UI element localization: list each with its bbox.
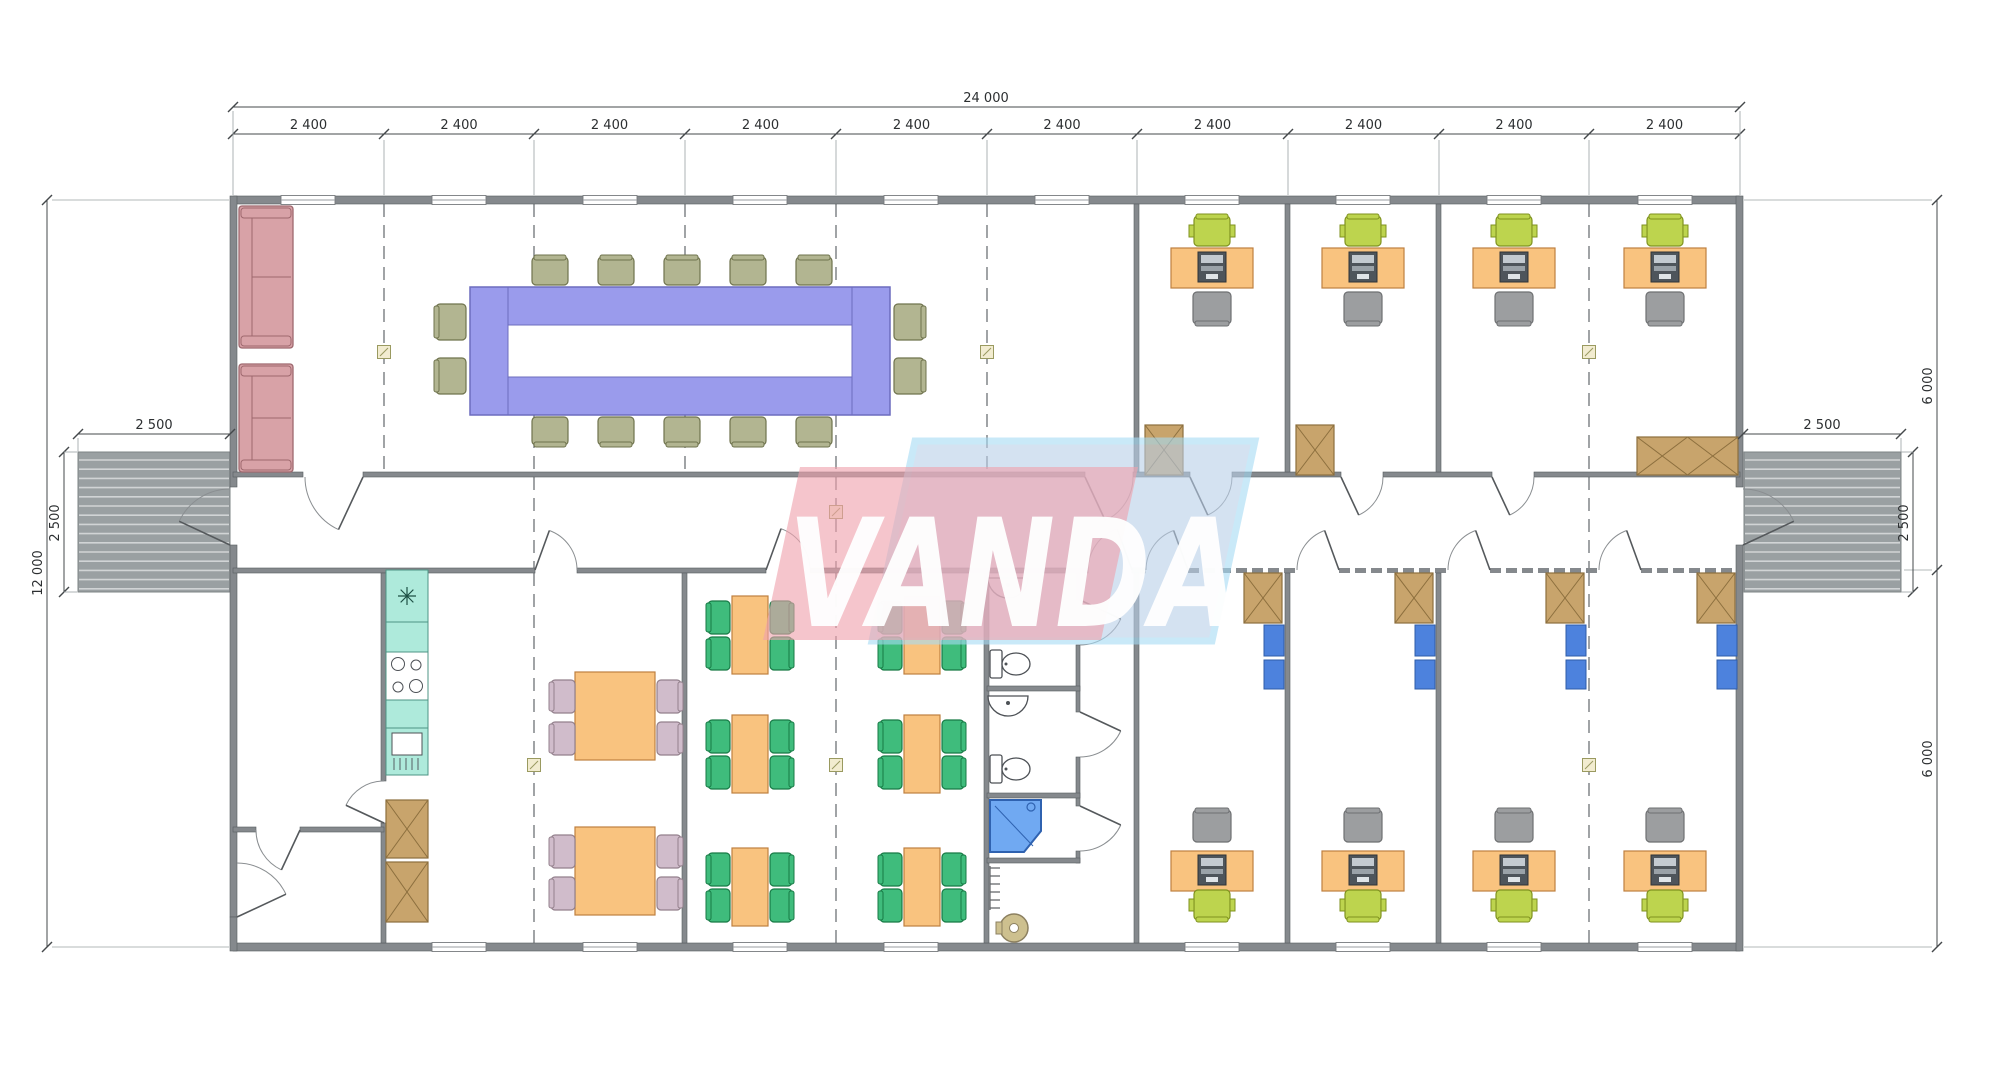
sofa-arm: [241, 460, 291, 470]
dim-bay-width: 2 400: [591, 118, 628, 133]
water-heater-icon: [1010, 924, 1019, 933]
vestibule-entry-door-leaf: [237, 894, 286, 917]
basin-tap-icon: [1006, 701, 1010, 705]
conference-chair-back: [534, 255, 566, 260]
cafeteria-chair-back: [878, 855, 883, 884]
guest-chair-back: [1347, 214, 1379, 219]
meeting-room-door-leaf: [338, 477, 363, 530]
dining-chair-back: [678, 879, 683, 908]
sofa-arm: [241, 366, 291, 376]
conference-chair: [436, 358, 466, 394]
watermark-layer: VANDA: [763, 441, 1255, 662]
floor-plan-canvas: VANDA 24 000 2 4002 4002 4002 4002 4002 …: [0, 0, 2000, 1069]
dim-right-porch-width: 2 500: [1803, 418, 1840, 433]
computer-screen: [1201, 255, 1223, 263]
guest-chair-arm: [1381, 899, 1386, 911]
conference-table-center: [508, 325, 852, 377]
dim-bay-width: 2 400: [1043, 118, 1080, 133]
task-chair-back: [1648, 808, 1682, 813]
guest-chair-back: [1649, 917, 1681, 922]
shelf-unit: [1264, 660, 1284, 689]
conference-chair: [796, 257, 832, 285]
guest-chair-arm: [1230, 225, 1235, 237]
dining-chair-back: [678, 724, 683, 753]
computer-screen: [1654, 255, 1676, 263]
cafeteria-chair-back: [706, 722, 711, 751]
dining-chair: [657, 835, 681, 868]
guest-chair-arm: [1532, 225, 1537, 237]
dining-chair: [657, 680, 681, 713]
cafeteria-chair-back: [878, 758, 883, 787]
conference-chair: [894, 304, 924, 340]
task-chair-back: [1346, 808, 1380, 813]
vestibule-wall: [233, 827, 256, 832]
sofa-arm: [241, 336, 291, 346]
guest-chair-arm: [1189, 899, 1194, 911]
conference-chair: [532, 417, 568, 445]
shelf-unit: [1717, 625, 1737, 656]
task-chair-back: [1195, 321, 1229, 326]
top-office-door-leaf: [1341, 477, 1359, 515]
computer-screen: [1654, 858, 1676, 866]
basin-icon: [988, 696, 1028, 716]
computer-tray: [1659, 877, 1671, 882]
cafeteria-chair-back: [706, 891, 711, 920]
top-office-door-arc: [1510, 477, 1534, 515]
computer-screen: [1352, 858, 1374, 866]
exterior-wall-left: [230, 917, 237, 951]
shower-door-leaf: [1080, 806, 1121, 825]
guest-chair-arm: [1642, 225, 1647, 237]
task-chair: [1344, 292, 1382, 324]
cooktop: [386, 652, 428, 700]
task-chair: [1495, 810, 1533, 842]
cafeteria-chair-back: [706, 758, 711, 787]
computer-slot: [1654, 266, 1676, 271]
computer-screen: [1352, 255, 1374, 263]
cafeteria-table: [904, 715, 940, 793]
computer-screen: [1503, 858, 1525, 866]
conference-chair-back: [798, 255, 830, 260]
cafeteria-table: [732, 596, 768, 674]
corridor-wall-bottom: [233, 568, 535, 573]
task-chair-back: [1195, 808, 1229, 813]
guest-chair: [1345, 216, 1381, 246]
guest-chair: [1345, 890, 1381, 920]
dining-chair: [551, 835, 575, 868]
guest-chair-arm: [1642, 899, 1647, 911]
sanitary-wall: [987, 858, 1080, 863]
top-office-door-arc: [1359, 477, 1383, 515]
dining-chair: [551, 680, 575, 713]
task-chair-back: [1497, 321, 1531, 326]
dining-chair-back: [549, 879, 554, 908]
conference-chair-back: [434, 306, 439, 338]
office-partition-wall: [1134, 204, 1139, 472]
conference-chair: [664, 417, 700, 445]
water-heater-spout-icon: [996, 922, 1002, 934]
guest-chair-back: [1498, 917, 1530, 922]
kitchen-room-door-arc: [346, 781, 384, 805]
top-office-door-leaf: [1492, 477, 1510, 515]
cafeteria-chair-back: [706, 603, 711, 632]
kitchen-room-door-leaf: [346, 805, 384, 823]
vestibule-entry-door-arc: [237, 863, 286, 894]
guest-chair: [1647, 890, 1683, 920]
computer-slot: [1201, 869, 1223, 874]
bottom-office-door-leaf: [1325, 531, 1339, 570]
dining-chair: [657, 877, 681, 910]
bottom-office-door-leaf: [1476, 531, 1490, 570]
task-chair-back: [1497, 808, 1531, 813]
toilet-button-icon: [1005, 768, 1008, 771]
guest-chair: [1496, 216, 1532, 246]
bottom-office-door-arc: [1297, 531, 1325, 571]
shelf-unit: [1717, 660, 1737, 689]
exterior-wall-left: [230, 196, 237, 487]
dining-door-arc: [549, 531, 577, 571]
dim-upper-right-height: 6 000: [1921, 367, 1936, 404]
bottom-office-door-arc: [1448, 531, 1476, 571]
kitchen-wall: [381, 573, 386, 781]
conference-chair: [436, 304, 466, 340]
computer-tray: [1508, 877, 1520, 882]
meeting-room-door-arc: [305, 477, 339, 530]
guest-chair-back: [1196, 917, 1228, 922]
watermark-text: VANDA: [788, 488, 1240, 662]
dim-bay-width: 2 400: [440, 118, 477, 133]
office-partition-wall: [1436, 204, 1441, 472]
guest-chair-arm: [1491, 899, 1496, 911]
conference-chair: [664, 257, 700, 285]
conference-chair: [894, 358, 924, 394]
cafeteria-table: [904, 848, 940, 926]
dining-door-leaf: [535, 531, 549, 570]
guest-chair-arm: [1381, 225, 1386, 237]
shower-icon: [990, 800, 1041, 852]
dim-bay-width: 2 400: [1345, 118, 1382, 133]
corridor-wall-top: [1383, 472, 1492, 477]
cafeteria-chair-back: [878, 722, 883, 751]
task-chair: [1495, 292, 1533, 324]
dining-chair: [551, 877, 575, 910]
conference-chair-back: [666, 442, 698, 447]
bay-dimension-labels: 2 4002 4002 4002 4002 4002 4002 4002 400…: [290, 118, 1683, 133]
exterior-wall-right: [1736, 545, 1743, 951]
dim-bay-width: 2 400: [1646, 118, 1683, 133]
cafeteria-chair-back: [789, 891, 794, 920]
guest-chair-arm: [1683, 899, 1688, 911]
vestibule-wall: [300, 827, 384, 832]
kitchen-unit: [386, 700, 428, 728]
task-chair: [1344, 810, 1382, 842]
guest-chair-back: [1347, 917, 1379, 922]
computer-tray: [1206, 877, 1218, 882]
toilet-tank-icon: [990, 755, 1002, 783]
shelf-unit: [1566, 660, 1586, 689]
guest-chair-back: [1649, 214, 1681, 219]
dining-table: [575, 672, 655, 760]
computer-tray: [1659, 274, 1671, 279]
task-chair: [1646, 292, 1684, 324]
guest-chair: [1194, 216, 1230, 246]
task-chair-back: [1648, 321, 1682, 326]
task-chair-back: [1346, 321, 1380, 326]
guest-chair-arm: [1340, 225, 1345, 237]
dining-chair-back: [678, 837, 683, 866]
conference-chair-back: [732, 255, 764, 260]
computer-slot: [1352, 266, 1374, 271]
dim-overall-height: 12 000: [31, 550, 46, 596]
corridor-wall-top: [233, 472, 303, 477]
task-chair: [1646, 810, 1684, 842]
computer-tray: [1206, 274, 1218, 279]
guest-chair-arm: [1340, 899, 1345, 911]
guest-chair-arm: [1189, 225, 1194, 237]
exterior-wall-left: [230, 545, 237, 917]
cafeteria-table: [732, 715, 768, 793]
sanitary-wall: [1076, 757, 1080, 806]
cafeteria-chair-back: [961, 891, 966, 920]
dining-chair-back: [549, 837, 554, 866]
office-partition-wall: [1285, 204, 1290, 472]
computer-slot: [1503, 266, 1525, 271]
conference-chair-back: [732, 442, 764, 447]
task-chair: [1193, 292, 1231, 324]
cafeteria-chair-back: [789, 855, 794, 884]
shelf-unit: [1415, 625, 1435, 656]
conference-chair-back: [600, 255, 632, 260]
shower-door-arc: [1080, 825, 1121, 851]
dim-bay-width: 2 400: [1194, 118, 1231, 133]
conference-chair-back: [534, 442, 566, 447]
bottom-office-door-arc: [1599, 531, 1627, 571]
task-chair: [1193, 810, 1231, 842]
dining-chair-back: [549, 682, 554, 711]
conference-chair: [796, 417, 832, 445]
wc-door-arc: [1080, 731, 1121, 757]
sanitary-wall: [987, 686, 1080, 691]
computer-slot: [1201, 266, 1223, 271]
conference-chair: [598, 417, 634, 445]
partition-wall: [1285, 573, 1290, 943]
kitchen-unit: [386, 622, 428, 652]
computer-slot: [1654, 869, 1676, 874]
conference-chair: [730, 257, 766, 285]
guest-chair: [1496, 890, 1532, 920]
vestibule-inner-door-leaf: [281, 830, 300, 870]
wc-door-leaf: [1080, 712, 1121, 731]
guest-chair-arm: [1230, 899, 1235, 911]
cafeteria-chair-back: [706, 639, 711, 668]
dim-overall-width: 24 000: [963, 91, 1009, 106]
fridge: [392, 733, 422, 755]
conference-chair-back: [600, 442, 632, 447]
conference-chair-back: [666, 255, 698, 260]
conference-chair-back: [434, 360, 439, 392]
dim-bay-width: 2 400: [1495, 118, 1532, 133]
conference-chair: [730, 417, 766, 445]
corridor-wall-bottom: [577, 568, 766, 573]
bottom-office-door-leaf: [1627, 531, 1641, 570]
shelf-unit: [1415, 660, 1435, 689]
conference-chair: [532, 257, 568, 285]
cafeteria-chair-back: [789, 758, 794, 787]
vestibule-inner-door-arc: [256, 830, 281, 870]
conference-chair-back: [921, 306, 926, 338]
dining-chair-back: [678, 682, 683, 711]
guest-chair-arm: [1491, 225, 1496, 237]
computer-tray: [1357, 877, 1369, 882]
cafeteria-chair-back: [706, 855, 711, 884]
guest-chair: [1194, 890, 1230, 920]
kitchen-wall: [381, 823, 386, 943]
guest-chair: [1647, 216, 1683, 246]
conference-chair: [598, 257, 634, 285]
dim-bay-width: 2 400: [893, 118, 930, 133]
cafeteria-chair-back: [789, 722, 794, 751]
computer-screen: [1201, 858, 1223, 866]
cafeteria-chair-back: [961, 722, 966, 751]
guest-chair-back: [1196, 214, 1228, 219]
dining-chair: [551, 722, 575, 755]
cafeteria-chair-back: [878, 891, 883, 920]
cafeteria-table: [732, 848, 768, 926]
dining-chair-back: [549, 724, 554, 753]
computer-tray: [1508, 274, 1520, 279]
computer-slot: [1503, 869, 1525, 874]
cafeteria-door-leaf: [766, 529, 781, 570]
dim-left-porch-depth: 2 500: [48, 504, 63, 541]
guest-chair-back: [1498, 214, 1530, 219]
dim-lower-right-height: 6 000: [1921, 740, 1936, 777]
dim-right-porch-depth: 2 500: [1897, 504, 1912, 541]
shelf-unit: [1566, 625, 1586, 656]
computer-screen: [1503, 255, 1525, 263]
computer-tray: [1357, 274, 1369, 279]
cafeteria-chair-back: [961, 855, 966, 884]
dim-left-porch-width: 2 500: [135, 418, 172, 433]
shelf-unit: [1264, 625, 1284, 656]
sanitary-wall: [987, 793, 1080, 798]
wardrobe: [1637, 437, 1738, 475]
toilet-button-icon: [1005, 663, 1008, 666]
conference-chair-back: [798, 442, 830, 447]
conference-chair-back: [921, 360, 926, 392]
dim-bay-width: 2 400: [742, 118, 779, 133]
floor-plan-page: VANDA 24 000 2 4002 4002 4002 4002 4002 …: [0, 0, 2000, 1069]
dining-table: [575, 827, 655, 915]
sofa-arm: [241, 208, 291, 218]
dim-bay-width: 2 400: [290, 118, 327, 133]
guest-chair-arm: [1532, 899, 1537, 911]
guest-chair-arm: [1683, 225, 1688, 237]
dining-chair: [657, 722, 681, 755]
cafeteria-chair-back: [961, 758, 966, 787]
computer-slot: [1352, 869, 1374, 874]
partition-wall: [1436, 573, 1441, 943]
